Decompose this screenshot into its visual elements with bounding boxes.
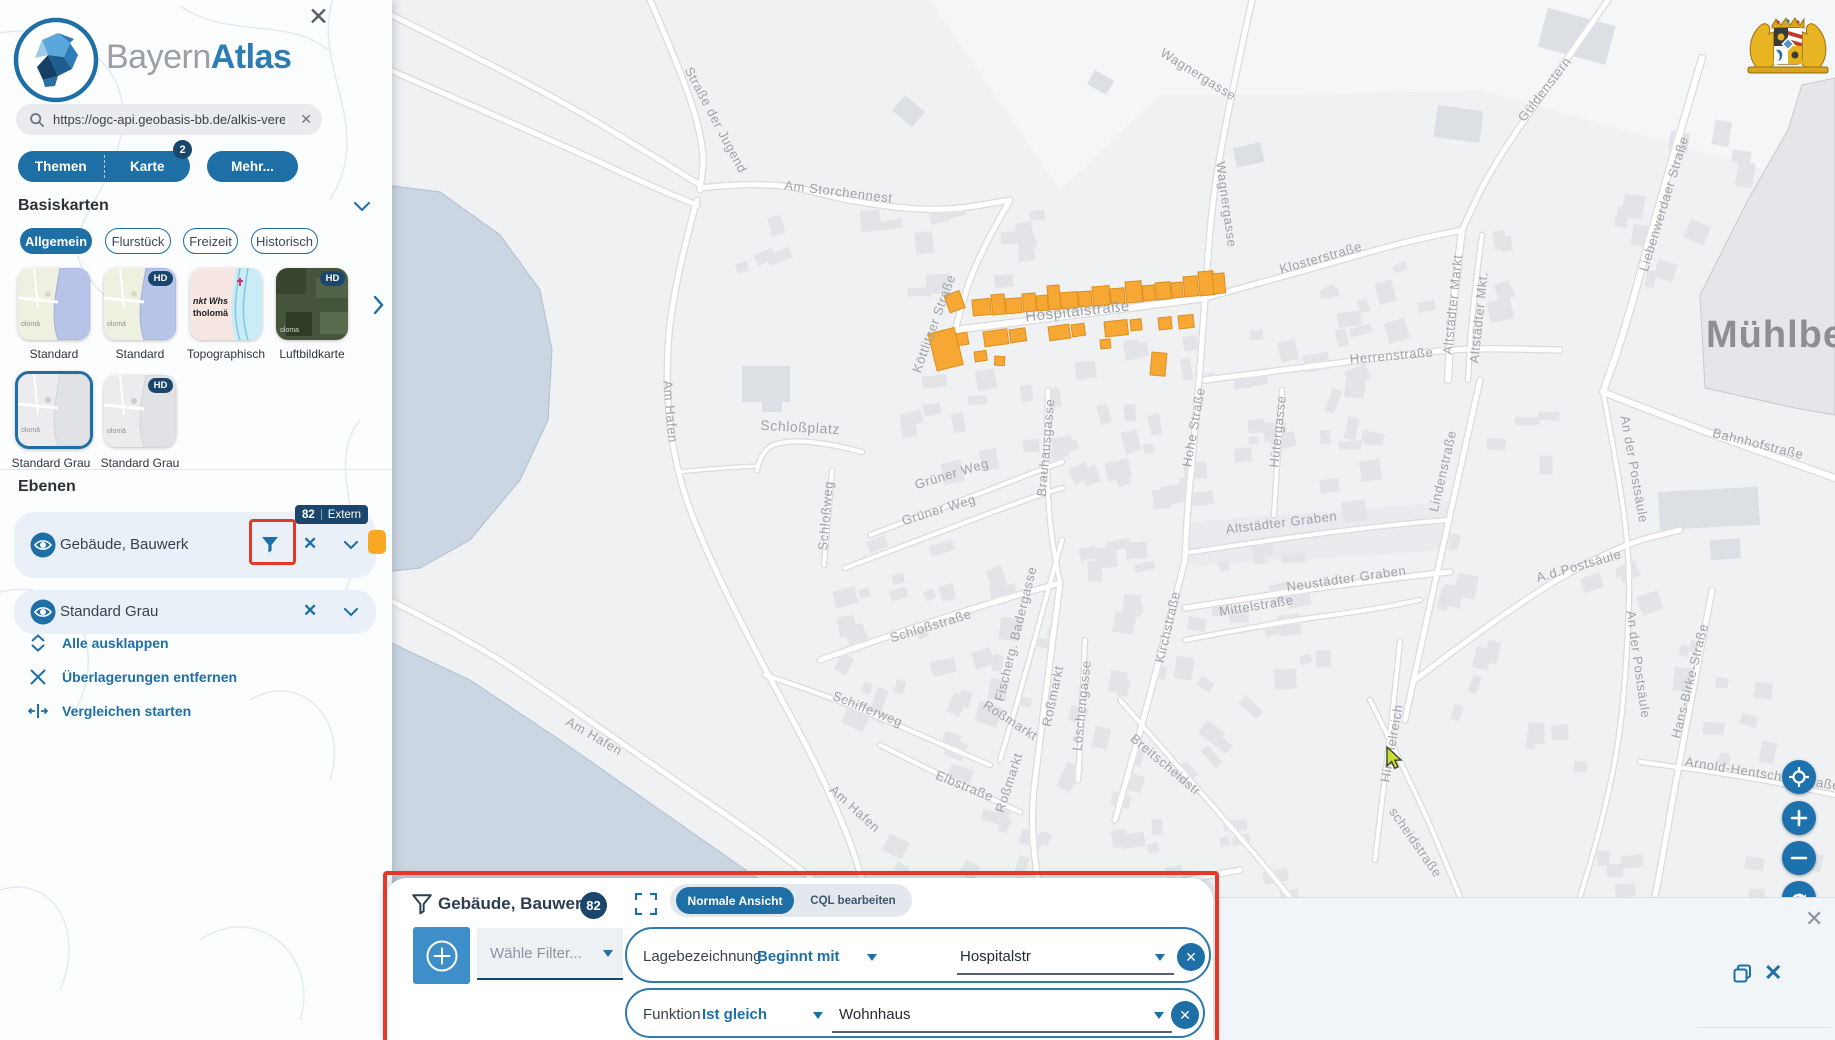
basemap-tile-standard[interactable]: olomäHD (104, 268, 176, 340)
sidebar-close-icon[interactable]: ✕ (308, 2, 329, 32)
svg-text:tholomä: tholomä (193, 308, 229, 318)
layer-extern-tag: Extern (328, 509, 361, 521)
badge-divider (321, 509, 322, 520)
tab-group: Themen Karte (18, 151, 190, 182)
add-filter-button[interactable] (413, 927, 470, 984)
chevron-down-icon (867, 954, 877, 961)
zoom-in-button[interactable] (1782, 801, 1816, 835)
search-icon (29, 112, 45, 128)
brand-light: Bayern (106, 38, 211, 76)
basemap-tile-label: Luftbildkarte (268, 347, 356, 361)
sidebar: ✕ BayernAtlas https://ogc-api.geoba (0, 0, 392, 1040)
brand-bold: Atlas (211, 38, 292, 76)
svg-text:oloma: oloma (280, 327, 299, 334)
basemap-tile-standard-grau[interactable]: olomäHD (104, 375, 176, 447)
basemap-tile-label: Topographisch (182, 347, 270, 361)
filter-select[interactable]: Wähle Filter... (477, 928, 623, 980)
layer-opacity-notch[interactable] (368, 530, 386, 554)
filter-operator-select[interactable]: Beginnt mit (757, 948, 840, 965)
layer-remove-icon[interactable]: ✕ (303, 601, 317, 621)
layer-label: Gebäude, Bauwerk (60, 536, 188, 553)
filter-operator-select[interactable]: Ist gleich (702, 1006, 767, 1023)
chip-allgemein[interactable]: Allgemein (20, 228, 92, 254)
bavaria-coat-of-arms (1742, 14, 1834, 76)
brand-title: BayernAtlas (106, 38, 291, 77)
chip-historisch[interactable]: Historisch (251, 228, 318, 254)
chevron-down-icon (1155, 954, 1165, 961)
view-toggle: Normale Ansicht CQL bearbeiten (670, 884, 912, 917)
svg-text:olomä: olomä (107, 428, 126, 435)
expand-icon[interactable] (635, 893, 657, 915)
layer-count: 82 (302, 509, 315, 521)
circle-plus-icon (424, 938, 460, 974)
tiles-next-icon[interactable] (374, 296, 384, 314)
layer-visibility-eye-icon[interactable] (30, 532, 56, 558)
chip-freizeit[interactable]: Freizeit (183, 228, 238, 254)
filter-panel: Gebäude, Bauwerk 82 Normale Ansicht CQL … (385, 878, 1213, 1040)
filter-row-2: FunktionIst gleichWohnhaus✕ (625, 988, 1205, 1038)
chevron-down-icon (603, 950, 613, 957)
filter-value-input[interactable]: Wohnhaus (839, 1006, 910, 1023)
tab-mehr[interactable]: Mehr... (207, 151, 298, 182)
basemap-tile-standard-grau[interactable]: olomä (15, 371, 93, 449)
chevron-down-icon (1154, 1012, 1164, 1019)
bottom-panel-strip: ✕ ✕ (1205, 897, 1835, 1040)
divider (1698, 1027, 1830, 1028)
layer-expand-chevron-icon[interactable] (344, 608, 358, 617)
filter-icon (411, 893, 433, 915)
bayernatlas-logo (12, 16, 100, 104)
compare-icon (28, 702, 48, 720)
basemap-tile-standard[interactable]: olomä (18, 268, 90, 340)
action-label: Vergleichen starten (62, 703, 191, 719)
minus-icon (1790, 849, 1808, 867)
svg-text:olomä: olomä (21, 427, 40, 434)
plus-icon (1790, 809, 1808, 827)
basemap-tile-label: Standard (96, 347, 184, 361)
hd-badge: HD (148, 378, 173, 393)
input-underline (832, 1031, 1172, 1033)
chip-flurstück[interactable]: Flurstück (105, 228, 171, 254)
layer-extern-badge: 82Extern (295, 505, 368, 524)
ebenen-heading: Ebenen (18, 478, 76, 496)
toggle-cql-bearbeiten[interactable]: CQL bearbeiten (798, 887, 908, 914)
layer-remove-icon[interactable]: ✕ (303, 534, 317, 554)
chevron-down-icon (813, 1012, 823, 1019)
search-clear-icon[interactable]: ✕ (300, 111, 312, 128)
filter-panel-title: Gebäude, Bauwerk (438, 894, 591, 914)
geolocate-button[interactable] (1782, 760, 1816, 794)
search-input[interactable]: https://ogc-api.geobasis-bb.de/alkis-ver… (53, 112, 285, 127)
geolocate-icon (1788, 766, 1810, 788)
toggle-normale-ansicht[interactable]: Normale Ansicht (676, 887, 794, 914)
layer-label: Standard Grau (60, 603, 158, 620)
svg-text:olomä: olomä (107, 321, 126, 328)
karte-count-badge: 2 (173, 140, 192, 159)
svg-text:olomä: olomä (21, 321, 40, 328)
state-shield-icon (1774, 28, 1802, 64)
restore-window-icon[interactable] (1733, 964, 1752, 983)
city-label: Mühlberg (1706, 314, 1835, 356)
hd-badge: HD (148, 271, 173, 286)
basemap-tile-label: Standard (10, 347, 98, 361)
action-label: Überlagerungen entfernen (62, 669, 237, 685)
action-expand-all[interactable]: Alle ausklappen (28, 634, 169, 652)
layer-filter-icon[interactable] (261, 536, 279, 554)
panel-close-icon[interactable]: ✕ (1805, 906, 1823, 932)
expand-all-icon (28, 634, 48, 652)
svg-text:nkt Whs: nkt Whs (193, 296, 228, 306)
divider (0, 469, 392, 470)
layer-row-2[interactable]: Standard Grau✕ (14, 590, 376, 634)
filter-field-label: Lagebezeichnung (643, 948, 761, 965)
filter-field-label: Funktion (643, 1006, 701, 1023)
basemap-tile-label: Standard Grau (6, 456, 96, 470)
layer-expand-chevron-icon[interactable] (344, 541, 358, 550)
input-underline (957, 973, 1174, 975)
zoom-out-button[interactable] (1782, 841, 1816, 875)
result-count-badge: 82 (580, 892, 607, 919)
filter-select-placeholder: Wähle Filter... (490, 945, 582, 962)
filter-clear-button[interactable]: ✕ (1171, 1001, 1199, 1029)
tab-themen[interactable]: Themen (18, 151, 104, 182)
bayernatlas-app: Straße der JugendWagnergasseWagnergasseA… (0, 0, 1835, 1040)
layer-visibility-eye-icon[interactable] (30, 599, 56, 625)
action-label: Alle ausklappen (62, 635, 169, 651)
basiskarten-collapse-icon[interactable] (354, 202, 370, 212)
basemap-tile-topographisch[interactable]: nkt Whstholomä (190, 268, 262, 340)
search-bar[interactable]: https://ogc-api.geobasis-bb.de/alkis-ver… (16, 104, 322, 135)
filter-value-input[interactable]: Hospitalstr (960, 948, 1031, 965)
hd-badge: HD (320, 271, 345, 286)
close-icon (28, 668, 48, 686)
action-close[interactable]: Überlagerungen entfernen (28, 668, 237, 686)
filter-row-1: LagebezeichnungBeginnt mitHospitalstr✕ (625, 927, 1211, 983)
close-window-icon[interactable]: ✕ (1764, 960, 1782, 986)
basemap-tile-label: Standard Grau (95, 456, 185, 470)
basiskarten-heading: Basiskarten (18, 197, 109, 215)
basemap-tile-luftbildkarte[interactable]: olomaHD (276, 268, 348, 340)
filter-clear-button[interactable]: ✕ (1177, 943, 1205, 971)
action-compare[interactable]: Vergleichen starten (28, 702, 191, 720)
